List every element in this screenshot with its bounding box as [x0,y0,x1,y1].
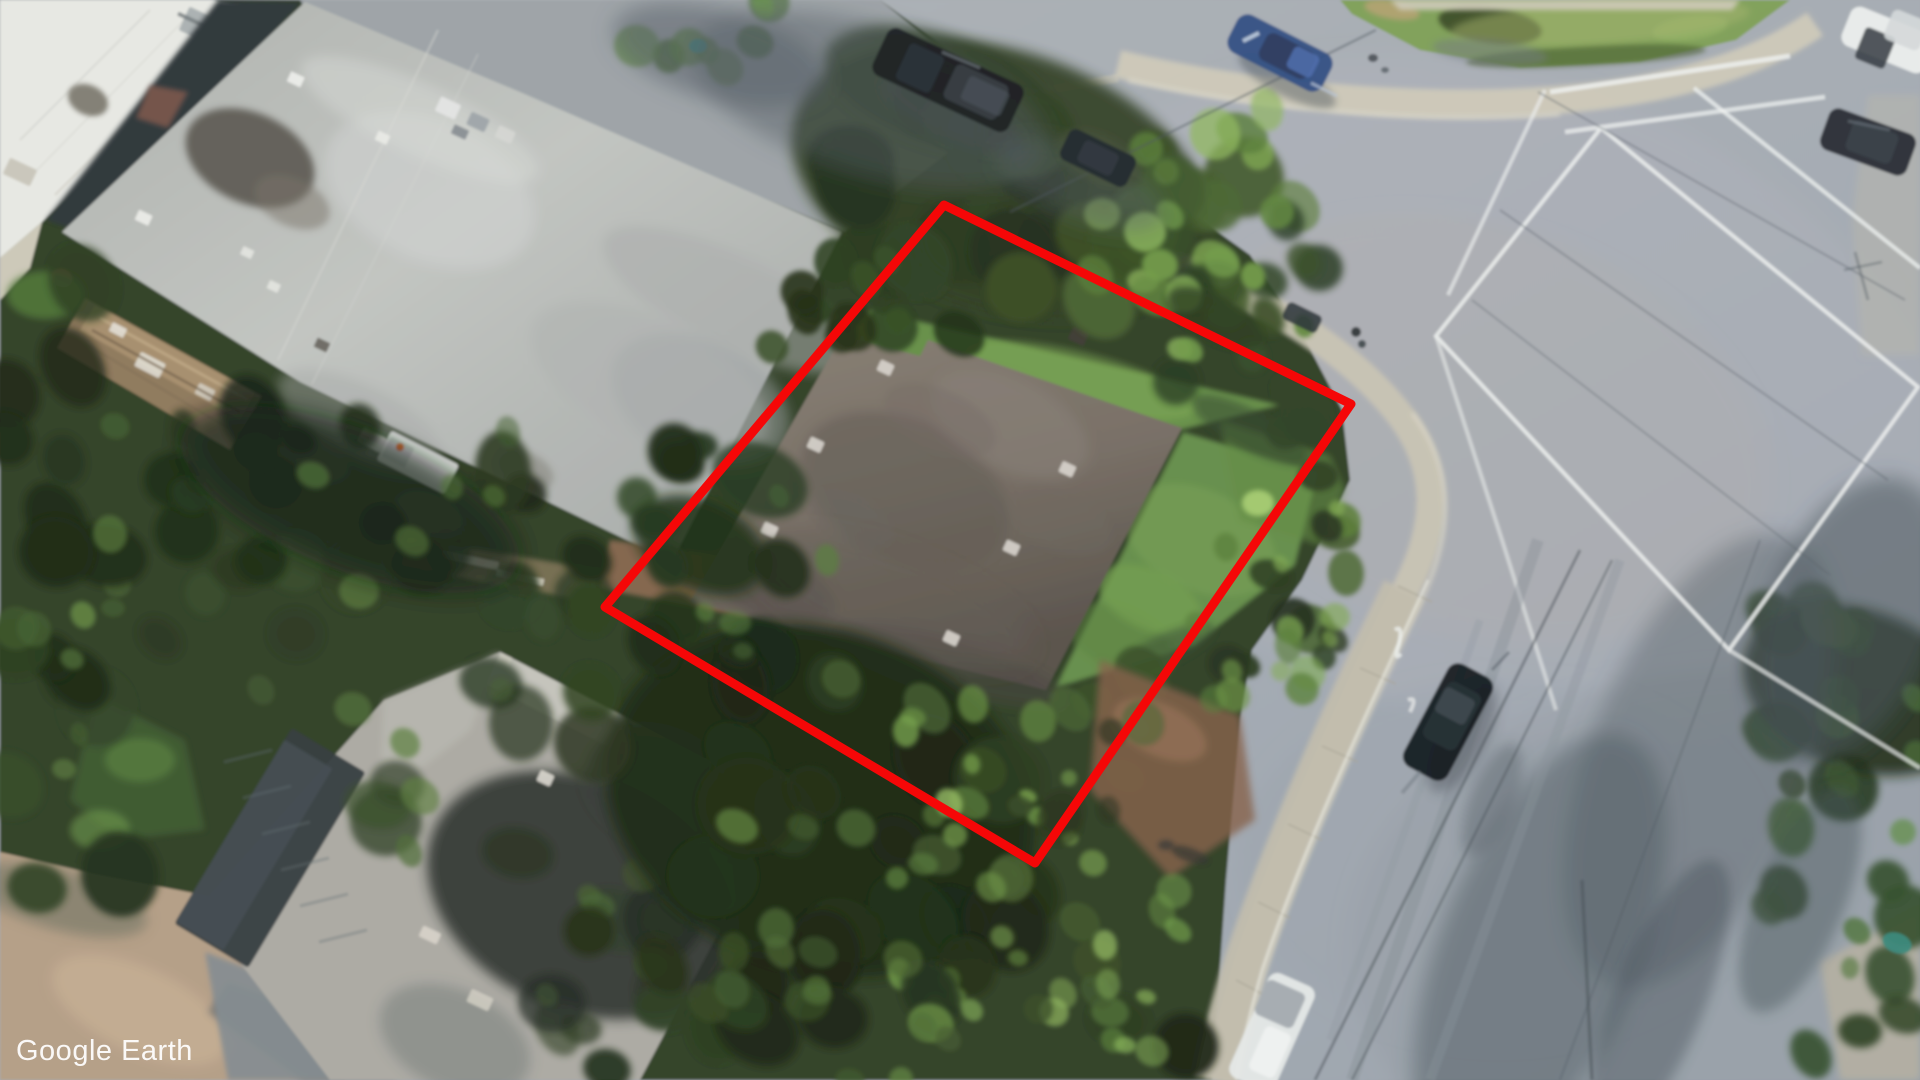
svg-text:Google Earth: Google Earth [16,1035,193,1067]
